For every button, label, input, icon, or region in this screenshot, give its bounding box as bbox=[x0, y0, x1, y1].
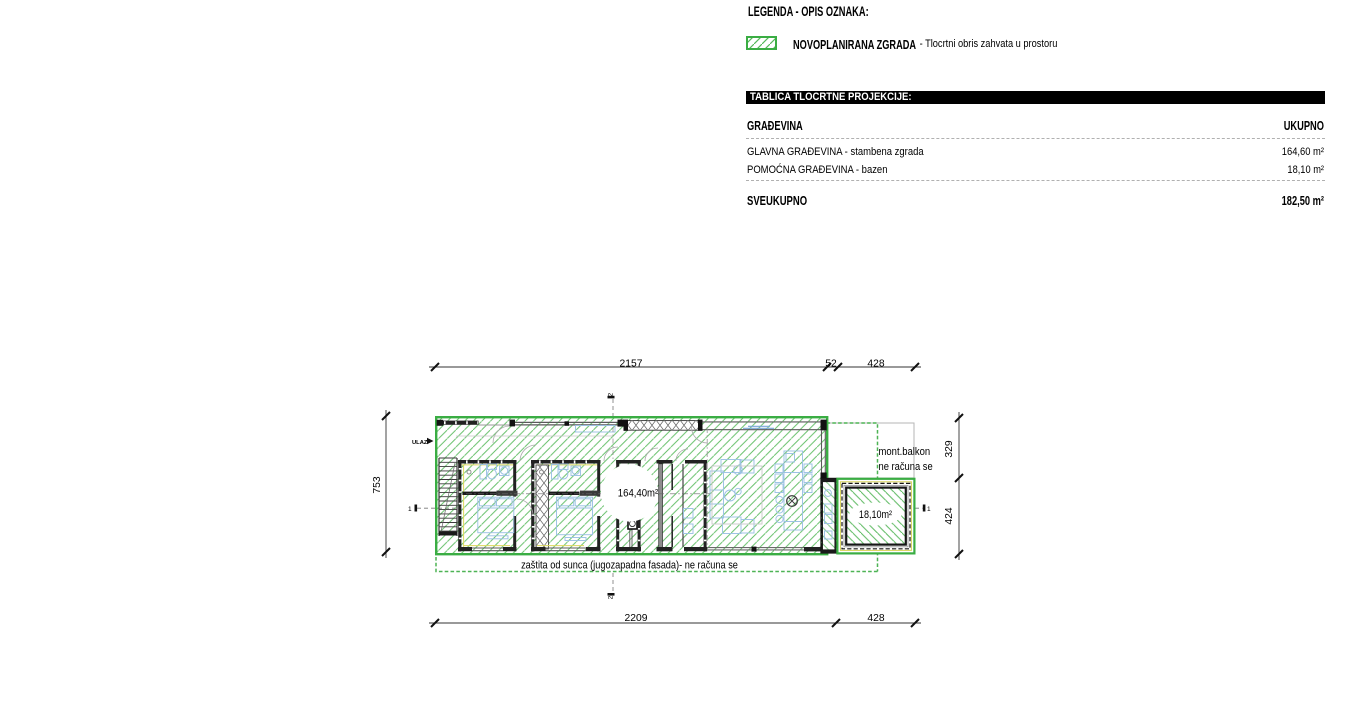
svg-text:428: 428 bbox=[867, 358, 884, 369]
svg-text:2: 2 bbox=[608, 392, 615, 396]
svg-text:428: 428 bbox=[867, 613, 884, 624]
svg-text:2209: 2209 bbox=[625, 613, 648, 624]
svg-text:18,10m²: 18,10m² bbox=[859, 509, 893, 521]
svg-text:164,40m²: 164,40m² bbox=[618, 488, 659, 500]
svg-text:52: 52 bbox=[825, 358, 837, 369]
svg-text:2157: 2157 bbox=[620, 358, 643, 369]
svg-text:1: 1 bbox=[408, 506, 412, 513]
svg-text:mont.balkon: mont.balkon bbox=[879, 446, 931, 458]
svg-text:zaštita od sunca (jugozapadna: zaštita od sunca (jugozapadna fasada)- n… bbox=[521, 560, 738, 572]
svg-text:329: 329 bbox=[944, 440, 955, 457]
svg-text:753: 753 bbox=[372, 476, 383, 493]
svg-text:1: 1 bbox=[927, 506, 931, 513]
svg-text:424: 424 bbox=[944, 507, 955, 524]
svg-text:2: 2 bbox=[608, 595, 615, 599]
svg-text:ULAZ: ULAZ bbox=[412, 440, 428, 446]
svg-text:ne računa se: ne računa se bbox=[879, 461, 933, 473]
